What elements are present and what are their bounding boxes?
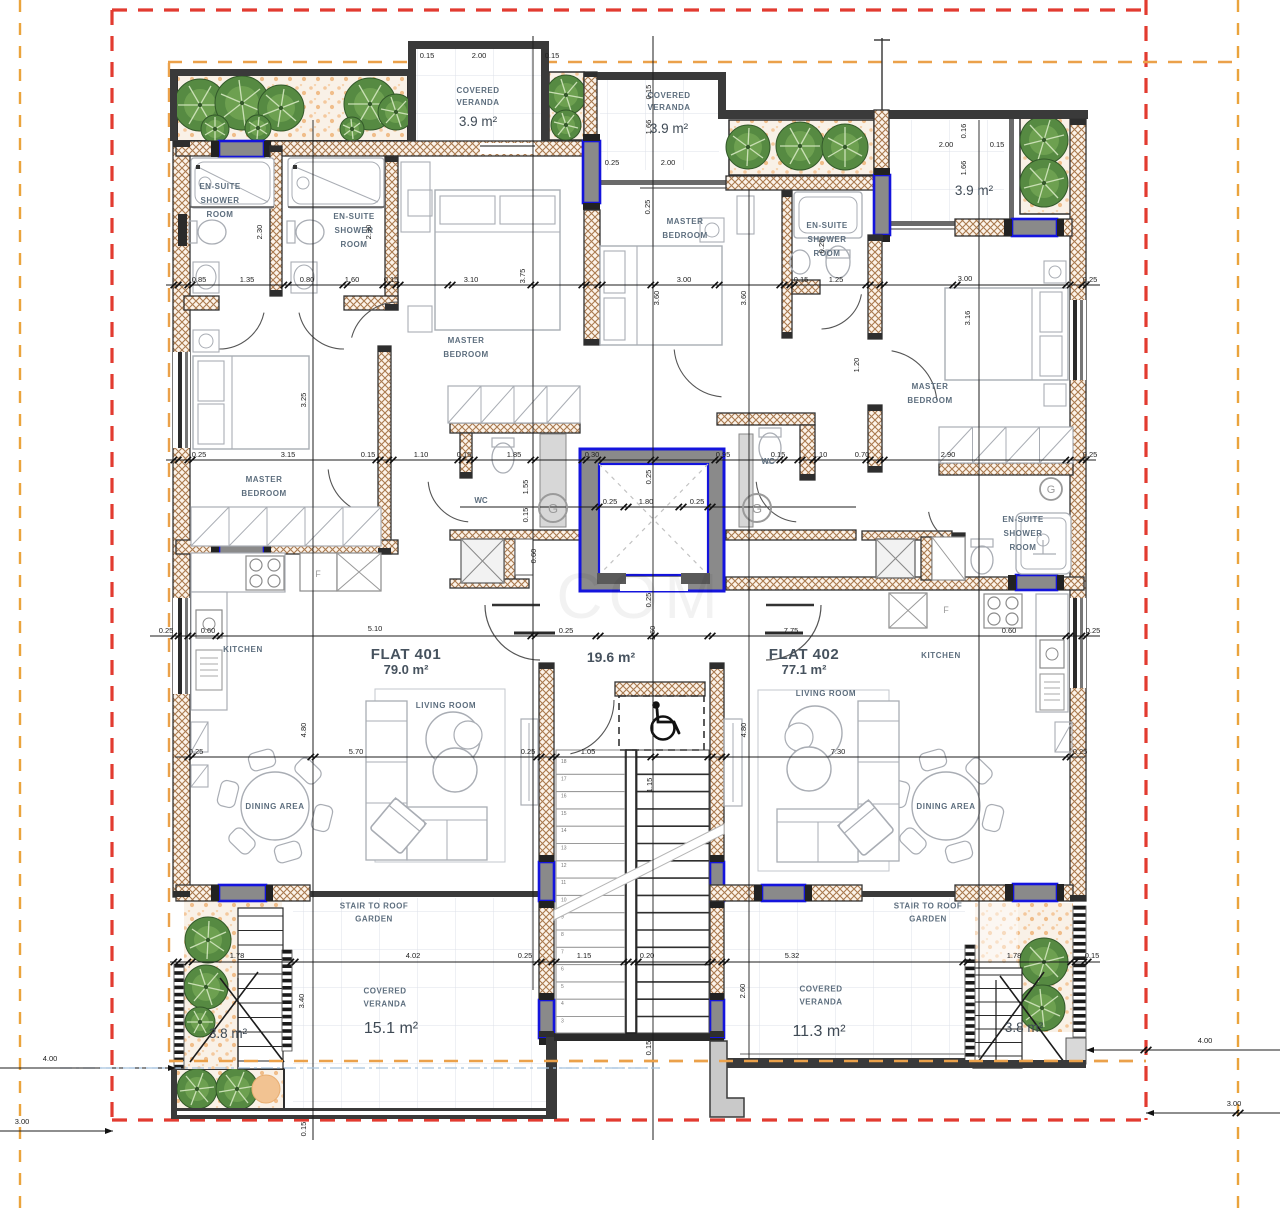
svg-text:2.90: 2.90: [941, 450, 956, 459]
svg-text:2.30: 2.30: [255, 225, 264, 240]
svg-text:1.55: 1.55: [521, 480, 530, 495]
svg-text:15: 15: [561, 811, 567, 817]
svg-text:EN-SUITE: EN-SUITE: [199, 182, 241, 191]
svg-text:3.9 m²: 3.9 m²: [459, 114, 498, 129]
svg-text:10: 10: [561, 897, 567, 903]
svg-text:LIVING ROOM: LIVING ROOM: [796, 689, 856, 698]
svg-text:2.00: 2.00: [472, 51, 487, 60]
svg-text:7.75: 7.75: [784, 626, 799, 635]
svg-text:1.05: 1.05: [581, 747, 596, 756]
svg-text:3.00: 3.00: [677, 275, 692, 284]
svg-text:7.30: 7.30: [831, 747, 846, 756]
svg-text:5: 5: [561, 984, 564, 990]
svg-text:COVERED: COVERED: [799, 985, 842, 994]
svg-text:7: 7: [561, 949, 564, 955]
svg-text:BEDROOM: BEDROOM: [907, 396, 952, 405]
svg-text:EN-SUITE: EN-SUITE: [1002, 515, 1044, 524]
svg-text:3.15: 3.15: [281, 450, 296, 459]
svg-text:5.10: 5.10: [368, 624, 383, 633]
svg-text:1.15: 1.15: [645, 778, 654, 793]
svg-text:12: 12: [561, 863, 567, 869]
svg-text:G: G: [548, 501, 558, 516]
svg-text:0.60: 0.60: [529, 549, 538, 564]
svg-text:3.00: 3.00: [1227, 1099, 1242, 1108]
svg-text:EN-SUITE: EN-SUITE: [806, 221, 848, 230]
svg-text:3.75: 3.75: [518, 269, 527, 284]
svg-text:ROOM: ROOM: [207, 210, 234, 219]
svg-text:BEDROOM: BEDROOM: [662, 231, 707, 240]
svg-text:1.66: 1.66: [644, 120, 653, 135]
svg-text:COM: COM: [556, 560, 723, 632]
svg-text:2.00: 2.00: [939, 140, 954, 149]
svg-text:0.15: 0.15: [545, 51, 560, 60]
svg-text:MASTER: MASTER: [912, 382, 949, 391]
svg-text:3.00: 3.00: [15, 1117, 30, 1126]
svg-text:SHOWER: SHOWER: [201, 196, 240, 205]
svg-text:1.78: 1.78: [1007, 951, 1022, 960]
svg-text:0.25: 0.25: [159, 626, 174, 635]
svg-text:4.00: 4.00: [1198, 1036, 1213, 1045]
svg-text:0.25: 0.25: [643, 200, 652, 215]
svg-text:F: F: [943, 605, 949, 615]
svg-text:4: 4: [561, 1001, 564, 1007]
svg-text:0.15: 0.15: [299, 1122, 308, 1137]
svg-text:4.02: 4.02: [406, 951, 421, 960]
svg-text:0.25: 0.25: [521, 747, 536, 756]
svg-text:FLAT 402: FLAT 402: [769, 646, 839, 663]
svg-text:5.70: 5.70: [349, 747, 364, 756]
svg-text:F: F: [315, 569, 321, 579]
svg-text:0.15: 0.15: [1085, 951, 1100, 960]
svg-text:0.25: 0.25: [690, 497, 705, 506]
svg-text:2.00: 2.00: [661, 158, 676, 167]
svg-text:BEDROOM: BEDROOM: [443, 350, 488, 359]
svg-text:GARDEN: GARDEN: [355, 915, 393, 924]
svg-text:ROOM: ROOM: [341, 240, 368, 249]
svg-text:14: 14: [561, 828, 567, 834]
svg-text:MASTER: MASTER: [667, 217, 704, 226]
svg-text:0.25: 0.25: [644, 470, 653, 485]
svg-text:5.32: 5.32: [785, 951, 800, 960]
svg-text:3.9 m²: 3.9 m²: [650, 121, 689, 136]
svg-text:0.15: 0.15: [521, 508, 530, 523]
svg-text:VERANDA: VERANDA: [799, 998, 842, 1007]
svg-text:0.25: 0.25: [603, 497, 618, 506]
svg-text:0.16: 0.16: [959, 124, 968, 139]
svg-text:KITCHEN: KITCHEN: [921, 651, 961, 660]
svg-text:EN-SUITE: EN-SUITE: [333, 212, 375, 221]
svg-text:3.60: 3.60: [739, 291, 748, 306]
svg-text:19.6 m²: 19.6 m²: [587, 649, 636, 665]
svg-text:16: 16: [561, 794, 567, 800]
svg-text:1.15: 1.15: [577, 951, 592, 960]
svg-text:MASTER: MASTER: [246, 475, 283, 484]
svg-text:COVERED: COVERED: [363, 987, 406, 996]
svg-text:DINING AREA: DINING AREA: [245, 802, 304, 811]
svg-text:0.80: 0.80: [300, 275, 315, 284]
svg-text:8: 8: [561, 932, 564, 938]
svg-text:18: 18: [561, 759, 567, 765]
svg-text:0.25: 0.25: [1073, 747, 1088, 756]
svg-text:3.40: 3.40: [297, 994, 306, 1009]
svg-text:4.80: 4.80: [739, 723, 748, 738]
svg-text:1.35: 1.35: [240, 275, 255, 284]
svg-text:0.15: 0.15: [361, 450, 376, 459]
svg-text:COVERED: COVERED: [456, 86, 499, 95]
svg-text:13: 13: [561, 846, 567, 852]
svg-text:3.10: 3.10: [464, 275, 479, 284]
svg-text:0.15: 0.15: [990, 140, 1005, 149]
svg-text:1.78: 1.78: [230, 951, 245, 960]
svg-text:2.30: 2.30: [364, 225, 373, 240]
svg-text:VERANDA: VERANDA: [647, 103, 690, 112]
svg-text:77.1 m²: 77.1 m²: [782, 662, 827, 677]
svg-text:6: 6: [561, 967, 564, 973]
svg-text:STAIR TO ROOF: STAIR TO ROOF: [894, 902, 962, 911]
svg-text:STAIR TO ROOF: STAIR TO ROOF: [340, 902, 408, 911]
svg-text:1.25: 1.25: [829, 275, 844, 284]
svg-text:G: G: [752, 501, 762, 516]
svg-text:0.25: 0.25: [817, 239, 826, 254]
svg-text:WC: WC: [474, 496, 488, 505]
svg-text:SHOWER: SHOWER: [808, 235, 847, 244]
svg-text:3.8 m²: 3.8 m²: [1005, 1020, 1044, 1035]
svg-text:0.15: 0.15: [644, 85, 653, 100]
svg-text:3.8 m²: 3.8 m²: [209, 1026, 248, 1041]
svg-text:4.00: 4.00: [43, 1054, 58, 1063]
svg-text:VERANDA: VERANDA: [456, 98, 499, 107]
svg-text:15.1 m²: 15.1 m²: [364, 1020, 419, 1037]
svg-text:1.60: 1.60: [345, 275, 360, 284]
svg-text:1.20: 1.20: [852, 358, 861, 373]
svg-text:79.0 m²: 79.0 m²: [384, 662, 429, 677]
svg-text:3.60: 3.60: [652, 291, 661, 306]
svg-text:1.85: 1.85: [507, 450, 522, 459]
svg-text:KITCHEN: KITCHEN: [223, 645, 263, 654]
svg-text:FLAT 401: FLAT 401: [371, 646, 441, 663]
svg-text:0.15: 0.15: [420, 51, 435, 60]
svg-text:ROOM: ROOM: [1010, 543, 1037, 552]
svg-text:0.25: 0.25: [605, 158, 620, 167]
svg-text:0.15: 0.15: [644, 1041, 653, 1056]
svg-text:1.80: 1.80: [639, 497, 654, 506]
svg-text:3.16: 3.16: [963, 311, 972, 326]
svg-text:G: G: [1047, 484, 1056, 496]
svg-text:0.30: 0.30: [585, 450, 600, 459]
svg-text:3: 3: [561, 1019, 564, 1025]
svg-text:2.60: 2.60: [738, 984, 747, 999]
svg-text:4.80: 4.80: [299, 723, 308, 738]
svg-text:BEDROOM: BEDROOM: [241, 489, 286, 498]
svg-text:VERANDA: VERANDA: [363, 1000, 406, 1009]
svg-text:3.25: 3.25: [299, 393, 308, 408]
svg-text:3.9 m²: 3.9 m²: [955, 183, 994, 198]
svg-text:0.25: 0.25: [518, 951, 533, 960]
svg-text:11.3 m²: 11.3 m²: [792, 1023, 846, 1040]
svg-text:1.10: 1.10: [414, 450, 429, 459]
svg-text:17: 17: [561, 776, 567, 782]
svg-text:MASTER: MASTER: [448, 336, 485, 345]
svg-text:0.60: 0.60: [201, 626, 216, 635]
svg-text:1.66: 1.66: [959, 161, 968, 176]
svg-text:0.20: 0.20: [640, 951, 655, 960]
svg-text:COVERED: COVERED: [647, 91, 690, 100]
svg-text:SHOWER: SHOWER: [1004, 529, 1043, 538]
svg-text:11: 11: [561, 880, 566, 886]
svg-text:0.60: 0.60: [1002, 626, 1017, 635]
svg-text:LIVING ROOM: LIVING ROOM: [416, 701, 476, 710]
svg-text:DINING AREA: DINING AREA: [916, 802, 975, 811]
svg-text:GARDEN: GARDEN: [909, 915, 947, 924]
